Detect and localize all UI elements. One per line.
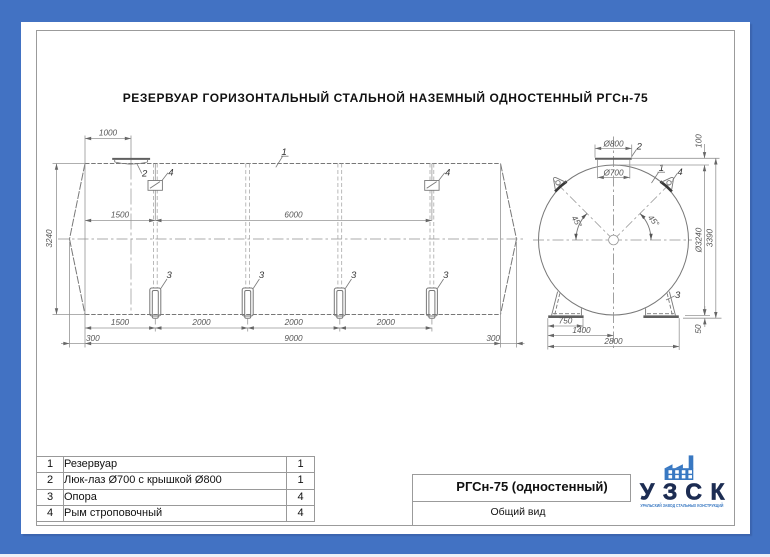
svg-text:3: 3 bbox=[167, 270, 173, 281]
svg-text:УЗСК: УЗСК bbox=[640, 479, 733, 505]
svg-text:3: 3 bbox=[259, 270, 265, 281]
svg-text:100: 100 bbox=[695, 134, 704, 148]
svg-text:2000: 2000 bbox=[376, 318, 396, 327]
svg-text:3: 3 bbox=[443, 270, 449, 281]
svg-text:1500: 1500 bbox=[111, 318, 130, 327]
svg-text:1400: 1400 bbox=[572, 326, 591, 335]
svg-text:6000: 6000 bbox=[284, 211, 303, 220]
svg-text:3: 3 bbox=[675, 290, 681, 301]
svg-text:1000: 1000 bbox=[99, 129, 118, 138]
svg-text:2: 2 bbox=[636, 141, 643, 152]
svg-text:4: 4 bbox=[168, 167, 173, 178]
svg-text:2000: 2000 bbox=[191, 318, 211, 327]
svg-text:750: 750 bbox=[559, 316, 573, 325]
svg-text:9000: 9000 bbox=[284, 334, 303, 343]
svg-text:Ø800: Ø800 bbox=[602, 140, 623, 149]
svg-text:1500: 1500 bbox=[111, 211, 130, 220]
svg-text:4: 4 bbox=[677, 167, 682, 178]
svg-text:2800: 2800 bbox=[603, 337, 623, 346]
svg-text:3240: 3240 bbox=[45, 229, 54, 248]
svg-text:3: 3 bbox=[351, 270, 357, 281]
svg-text:4: 4 bbox=[445, 167, 450, 178]
svg-text:2000: 2000 bbox=[284, 318, 304, 327]
svg-text:300: 300 bbox=[486, 334, 500, 343]
svg-text:2: 2 bbox=[141, 169, 148, 180]
svg-text:Ø3240: Ø3240 bbox=[695, 227, 704, 253]
svg-text:300: 300 bbox=[86, 334, 100, 343]
svg-text:Ø700: Ø700 bbox=[602, 169, 623, 178]
svg-text:3390: 3390 bbox=[706, 228, 715, 247]
svg-text:УРАЛЬСКИЙ ЗАВОД СТАЛЬНЫХ КОНСТ: УРАЛЬСКИЙ ЗАВОД СТАЛЬНЫХ КОНСТРУКЦИЙ bbox=[640, 501, 723, 508]
svg-text:50: 50 bbox=[694, 324, 703, 334]
